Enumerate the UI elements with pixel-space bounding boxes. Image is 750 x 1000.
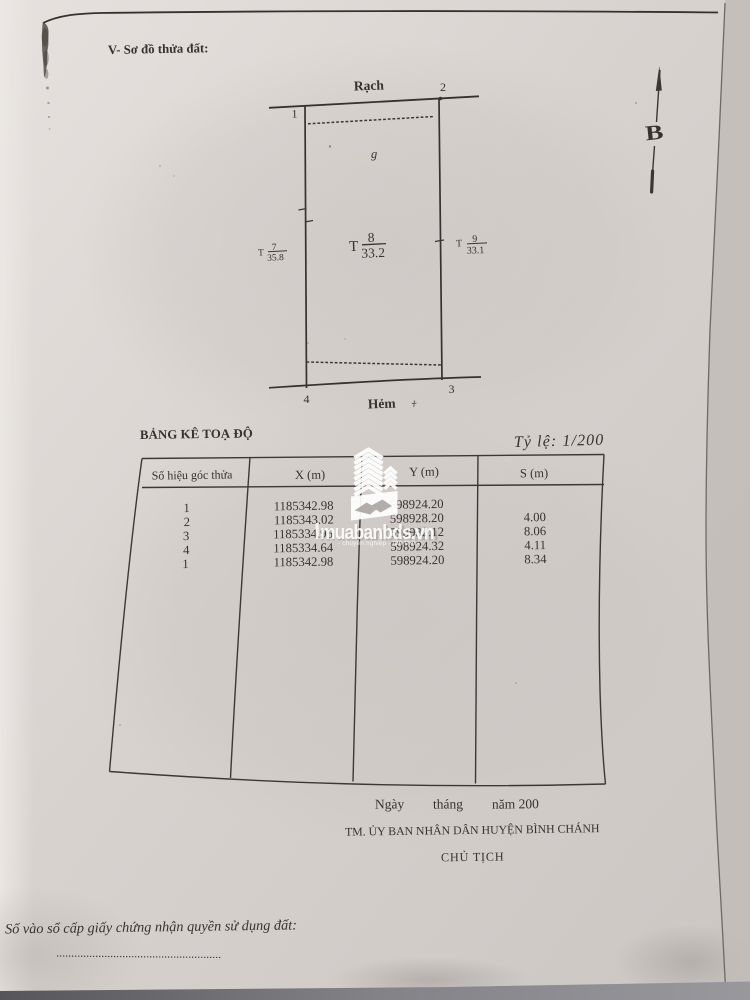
svg-text:X (m): X (m) — [295, 468, 325, 482]
svg-text:Ngày: Ngày — [375, 796, 405, 811]
svg-text:8.06: 8.06 — [524, 524, 546, 538]
svg-text:Hẻm: Hẻm — [368, 396, 397, 412]
svg-text:33.2: 33.2 — [361, 245, 385, 261]
svg-text:3: 3 — [183, 529, 190, 543]
svg-text:1: 1 — [183, 501, 190, 515]
svg-text:g: g — [371, 147, 377, 161]
svg-text:V- Sơ đồ thửa đất:: V- Sơ đồ thửa đất: — [108, 41, 209, 57]
svg-text:Tỷ lệ: 1/200: Tỷ lệ: 1/200 — [514, 432, 605, 451]
svg-text:1: 1 — [182, 557, 189, 571]
svg-text:8: 8 — [368, 230, 376, 245]
svg-text:2: 2 — [184, 515, 191, 529]
svg-text:S (m): S (m) — [520, 466, 548, 480]
svg-text:Y (m): Y (m) — [409, 465, 439, 479]
svg-text:T: T — [349, 239, 359, 255]
svg-text:4.00: 4.00 — [524, 510, 546, 524]
svg-text:598924.20: 598924.20 — [390, 497, 444, 512]
svg-text:Rạch: Rạch — [354, 77, 385, 93]
svg-text:CHỦ TỊCH: CHỦ TỊCH — [441, 850, 505, 865]
svg-text:3: 3 — [449, 382, 455, 396]
svg-text:1185342.98: 1185342.98 — [273, 555, 333, 570]
svg-text:Số hiệu góc thửa: Số hiệu góc thửa — [152, 467, 234, 482]
svg-text:4: 4 — [183, 543, 190, 557]
svg-text:T: T — [258, 248, 264, 258]
svg-text:4: 4 — [304, 392, 310, 406]
svg-text:1: 1 — [292, 107, 298, 121]
svg-text:T: T — [456, 238, 462, 249]
svg-text:4.11: 4.11 — [524, 538, 546, 552]
svg-text:năm 200: năm 200 — [492, 796, 539, 811]
svg-text:598924.20: 598924.20 — [390, 553, 444, 568]
svg-text:8.34: 8.34 — [524, 552, 547, 566]
svg-text:BẢNG KÊ TOẠ ĐỘ: BẢNG KÊ TOẠ ĐỘ — [140, 426, 253, 442]
svg-text:- chuyên nghiệp - tận tâm -: - chuyên nghiệp - tận tâm - — [338, 540, 420, 547]
svg-text:35.8: 35.8 — [267, 253, 284, 264]
svg-text:2: 2 — [440, 80, 446, 94]
svg-text:tháng: tháng — [433, 796, 463, 811]
svg-text:33.1: 33.1 — [467, 245, 485, 257]
svg-text:B: B — [644, 120, 664, 146]
svg-text:1185342.98: 1185342.98 — [274, 499, 334, 514]
